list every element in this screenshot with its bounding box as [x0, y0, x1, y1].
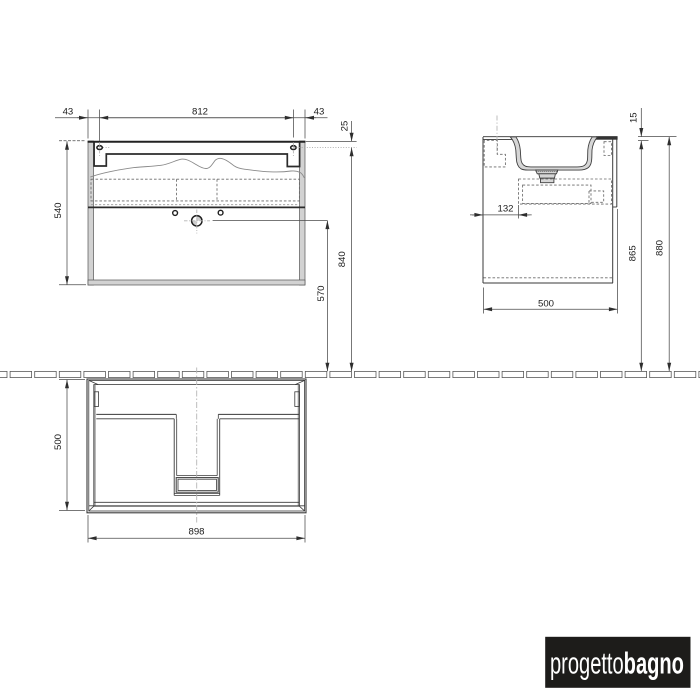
svg-text:812: 812 [192, 106, 208, 117]
svg-text:540: 540 [53, 202, 64, 218]
svg-text:500: 500 [538, 298, 554, 309]
svg-text:500: 500 [53, 434, 64, 450]
svg-text:43: 43 [63, 106, 74, 117]
svg-text:880: 880 [655, 240, 666, 256]
svg-text:840: 840 [337, 251, 348, 267]
svg-text:865: 865 [628, 245, 639, 261]
svg-text:15: 15 [629, 112, 640, 123]
svg-text:898: 898 [188, 527, 204, 538]
svg-text:570: 570 [316, 285, 327, 301]
svg-text:132: 132 [497, 204, 513, 215]
svg-text:43: 43 [314, 106, 325, 117]
svg-text:progettobagno: progettobagno [550, 645, 684, 681]
svg-text:25: 25 [340, 121, 351, 132]
